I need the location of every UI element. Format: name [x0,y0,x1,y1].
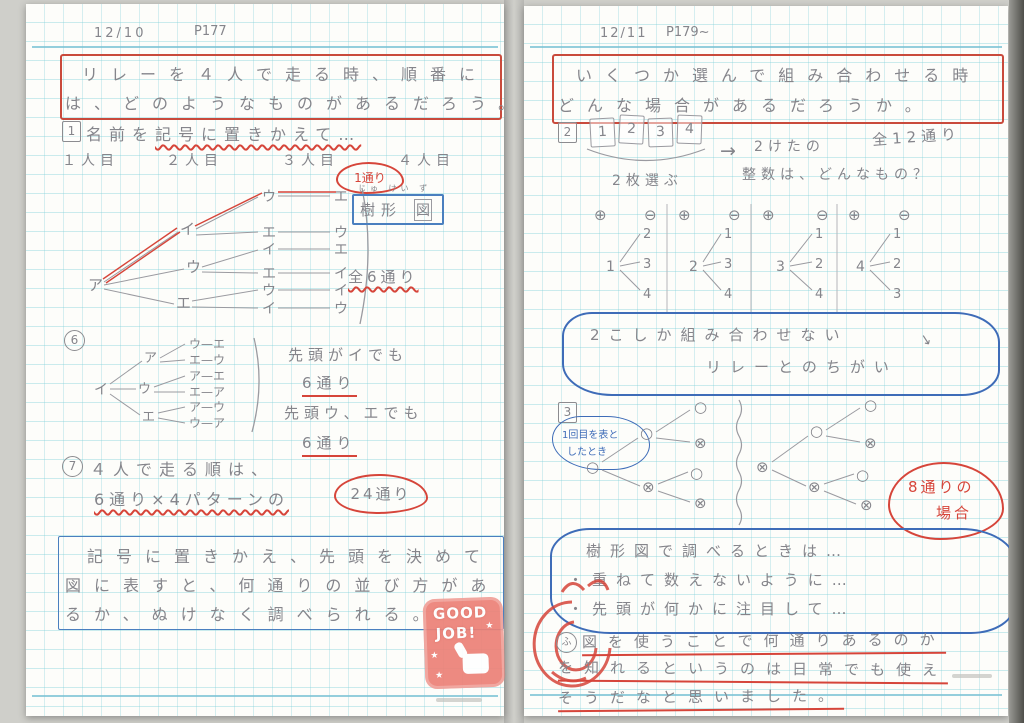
tree-root: ア [88,276,103,294]
digit-tree-child: 3 [893,287,901,302]
tree-node: イ [262,301,276,317]
tree-leaf-pair: ウ—ア [189,416,225,430]
runner-2: ２人目 [166,150,223,170]
coin-node: ○ [640,424,653,442]
tree-leaf-pair: エ—ア [189,385,225,399]
reflection-line1: 図を使うことで何通りあるのか [582,629,946,657]
step1-underlined: 記号に置きかえて… [155,125,361,144]
tree-node: エ [262,225,276,241]
good-job-stamp: GOOD JOB! ★ ★ ★ [422,597,505,690]
tens-place-icon: ⊕ [594,206,607,224]
tree-leaf: ウ [334,225,348,241]
star-icon: ★ [485,621,493,631]
number-card-2: 2 [618,114,644,144]
lead-ue-note: 先頭ウ、エでも [284,402,424,423]
runner-1: １人目 [62,150,119,170]
digit-tree-child: 1 [815,227,823,242]
tree-label-furigana: じゅ けい ず [358,183,431,194]
tree-leaf-pair: ア—エ [189,369,225,383]
ones-place-icon: ⊖ [816,206,829,224]
digit-tree-child: 3 [643,257,651,272]
curve-arrow-icon: ↘ [918,331,933,349]
digit-tree-child: 4 [815,287,823,302]
coin-leaf: ○ [690,464,703,482]
tree-leaf: エ [334,189,348,205]
coin-node: ○ [586,458,599,476]
tree-leaf-pair: ウ—エ [189,337,225,351]
first-runner-tree-diagram: イ ア ウ エ ウ—エ エ—ウ ア—エ エ—ア ア—ウ ウ—ア [90,334,290,438]
eight-ways-line2: 場合 [936,502,972,523]
tree-root: イ [94,382,108,398]
tens-place-icon: ⊕ [678,206,691,224]
main-tree-diagram: ア イ ウ エ ウ エ イ エ ウ イ エ ウ エ イ イ ウ [66,182,378,334]
step1-text: 名前を記号に置きかえて… [86,121,361,145]
eight-ways-line1: 8通りの [908,476,975,497]
summary-line3: るか、ぬけなく調べられる。 [65,601,442,625]
digit-tree-child: 4 [724,287,732,302]
tree-leaf-pair: エ—ウ [189,353,225,367]
tree-leaf: ウ [334,301,348,317]
digit-tree-root: 3 [776,259,785,275]
summary-line2: 図に表すと、何通りの並び方があ [65,572,499,596]
reflection-line2: を知れるというのは日常でも使え [558,657,948,685]
tree-node: ア [144,351,157,366]
lead-ue-count: 6通り [302,432,357,457]
top-rule-line [530,46,1002,48]
pick-two-label: 2枚選ぶ [612,170,683,190]
coin-node: ○ [810,422,823,440]
tree-leaf-pair: ア—ウ [189,400,225,414]
tree-diagram-term-box: 樹形 図 [352,194,444,225]
stamp-text-good: GOOD [433,603,488,623]
coin-node: ⊗ [808,478,821,496]
step6-marker: 6 [64,330,85,351]
digit-tree-child: 4 [643,287,651,302]
summary-line1: 記号に置きかえ、先頭を決めて [87,543,493,567]
digit-tree-child: 2 [893,257,901,272]
question-line1: 2けたの [754,136,825,156]
number-card-1: 1 [589,117,615,147]
coin-leaf: ○ [856,466,869,484]
digit-tree-root: 2 [689,259,698,275]
total-24-cloud: 24通り [334,474,428,514]
digit-tree-root: 4 [856,259,865,275]
two-digit-tree-diagrams: ⊕ ⊖ ⊕ ⊖ ⊕ ⊖ ⊕ ⊖ 1 2 3 4 2 1 3 4 3 1 2 4 … [554,196,984,320]
coin-node: ⊗ [756,458,769,476]
page-ref: P179~ [666,25,710,40]
step7-text: ４人で走る順は、 [90,456,274,480]
total-12-label: 全12通り [871,123,961,150]
top-rule-line [32,46,498,48]
tens-place-icon: ⊕ [762,206,775,224]
reflection-line3: そうだなと思いました。 [558,685,844,712]
ones-place-icon: ⊖ [644,206,657,224]
title-line1: リレーを４人で走る時、順番に [82,61,488,85]
runner-3: ３人目 [282,150,339,170]
tree-label-zu: 図 [414,199,432,221]
coin-leaf: ⊗ [864,434,877,452]
ones-place-icon: ⊖ [728,206,741,224]
step2-marker: 2 [558,122,577,143]
digit-tree-child: 1 [724,227,732,242]
tree-node: エ [142,410,155,425]
question-line2: 整数は、どんなもの？ [742,164,932,184]
tree-node: ウ [138,382,151,397]
reflection-marker: ふ [556,632,577,653]
tree-node: エ [262,266,276,282]
underbrace [584,146,708,168]
title-line2: は、どのようなものがあるだろう。 [65,90,527,114]
lead-i-note: 先頭がイでも [288,344,408,365]
number-card-3: 3 [648,118,674,148]
lead-i-count: 6通り [302,372,357,397]
step1-pre: 名前を [86,125,155,144]
scan-edge-shadow [1009,0,1024,723]
tree-node: ウ [262,189,276,205]
coin-tree-left: ○ ○ ⊗ ○ ⊗ ○ ⊗ [582,392,730,514]
tree-leaf: エ [334,242,348,258]
compare-line1: 2こしか組み合わせない [590,324,849,345]
coin-leaf: ⊗ [860,496,873,514]
tree-label-text: 樹形 [360,199,402,220]
coin-leaf: ⊗ [694,434,707,452]
title-line2: どんな場合があるだろうか。 [558,92,934,116]
digit-tree-child: 3 [724,257,732,272]
page-crease-shadow [504,0,524,723]
lesson-question-box: いくつか選んで組み合わせる時 どんな場合があるだろうか。 [552,54,1004,124]
step1-marker: 1 [62,121,81,142]
notebook-print-mark [436,698,482,702]
wavy-divider [732,398,746,526]
step7-marker: 7 [62,456,83,477]
tree-node: エ [176,294,191,312]
stamp-text-job: JOB! [435,624,476,643]
notebook-print-mark [952,674,992,678]
left-notebook-page: 12/10 P177 リレーを４人で走る時、順番に は、どのようなものがあるだろ… [26,4,504,716]
star-icon: ★ [435,671,443,681]
digit-tree-root: 1 [606,259,615,275]
coin-node: ⊗ [642,478,655,496]
arrow-right: → [720,140,736,162]
tree-leaf: イ [334,283,348,299]
runner-4: ４人目 [398,150,455,170]
star-icon: ★ [430,651,438,661]
title-line1: いくつか選んで組み合わせる時 [576,62,981,86]
bottom-rule-line [32,695,498,697]
coin-leaf: ⊗ [694,494,707,512]
tree-node: ウ [186,258,201,276]
coin-tree-right: ⊗ ○ ⊗ ○ ⊗ ○ ⊗ [752,392,900,514]
digit-tree-child: 2 [643,227,651,242]
thumbs-up-icon [462,653,489,674]
page-ref: P177 [194,24,227,39]
tree-node: イ [180,220,195,238]
compare-cloud: 2こしか組み合わせない ↘ リレーとのちがい [562,312,1000,396]
total-six-label: 全6通り [348,266,419,287]
total-24-label: 24通り [350,485,411,503]
digit-tree-child: 1 [893,227,901,242]
compare-line2: リレーとのちがい [706,356,898,377]
right-notebook-page: 12/11 P179~ いくつか選んで組み合わせる時 どんな場合があるだろうか。… [524,6,1008,716]
tree-node: ウ [262,283,276,299]
coin-leaf: ○ [864,396,877,414]
tens-place-icon: ⊕ [848,206,861,224]
digit-tree-child: 2 [815,257,823,272]
tree-node: イ [262,242,276,258]
ones-place-icon: ⊖ [898,206,911,224]
date: 12/10 [94,26,146,41]
step7-formula: 6通り×4パターンの [94,486,289,510]
lesson-question-box: リレーを４人で走る時、順番に は、どのようなものがあるだろう。 [60,54,502,120]
number-card-4: 4 [677,115,703,145]
coin-leaf: ○ [694,398,707,416]
tree-leaf: イ [334,266,348,282]
date: 12/11 [600,26,647,41]
